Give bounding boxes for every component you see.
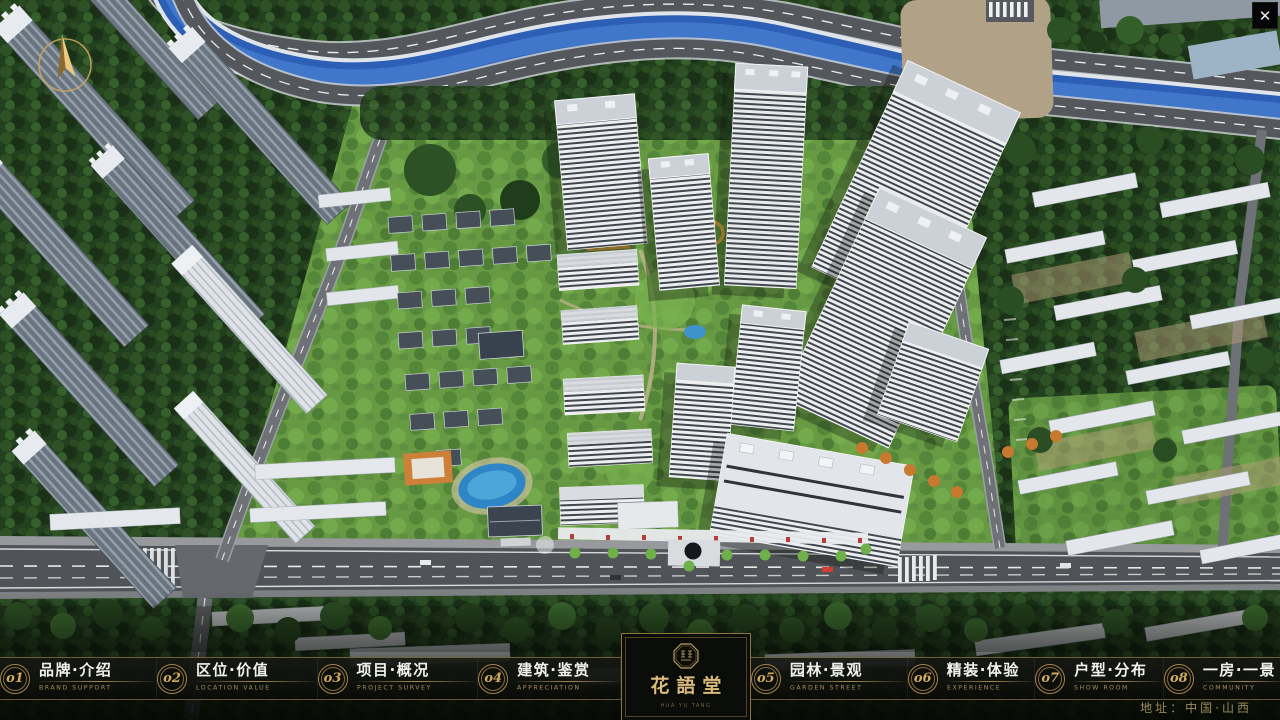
- divider: [790, 681, 907, 682]
- nav-item-number-badge: o1: [0, 664, 30, 694]
- nav-item-interior[interactable]: o6 精装·体验EXPERIENCE: [908, 658, 1036, 699]
- nav-item-number-badge: o6: [908, 664, 938, 694]
- nav-item-number: o6: [914, 671, 932, 686]
- project-address: 地址：中国·山西: [1140, 699, 1252, 716]
- nav-item-number-badge: o3: [318, 664, 348, 694]
- nav-item-sublabel: GARDEN STREET: [790, 685, 862, 692]
- nav-item-brand[interactable]: o1 品牌·介绍BRAND SUPPORT: [0, 658, 157, 699]
- nav-item-landscape[interactable]: o5 园林·景观GARDEN STREET: [751, 658, 908, 699]
- entry-feature: [685, 543, 702, 560]
- presentation-window: ✕ o1 品牌·介绍BRAND SUPPORT o2 区位·价值LOCATION…: [0, 0, 1280, 720]
- nav-item-label: 一房·一景: [1203, 663, 1276, 679]
- nav-item-floorplan[interactable]: o7 户型·分布SHOW ROOM: [1035, 658, 1164, 699]
- nav-item-label: 区位·价值: [196, 663, 269, 679]
- nav-item-sublabel: COMMUNITY: [1203, 685, 1255, 692]
- divider: [357, 681, 478, 682]
- brand-logo-subtext: HUA YU TANG: [660, 703, 711, 709]
- nav-item-number: o3: [324, 671, 342, 686]
- divider: [517, 681, 620, 682]
- nav-item-label: 园林·景观: [790, 663, 863, 679]
- divider: [196, 681, 316, 682]
- nav-item-number: o7: [1041, 671, 1059, 686]
- masterplan-3d-view[interactable]: [0, 0, 1280, 720]
- amenity-building: [403, 450, 453, 485]
- divider: [1074, 681, 1163, 682]
- nav-item-label: 项目·概况: [357, 663, 430, 679]
- divider: [39, 681, 156, 682]
- nav-item-number: o1: [6, 671, 24, 686]
- nav-item-number-badge: o2: [157, 664, 187, 694]
- nav-item-sublabel: SHOW ROOM: [1074, 685, 1129, 692]
- brand-seal-icon: [673, 643, 699, 669]
- nav-item-number-badge: o4: [478, 664, 508, 694]
- nav-item-sublabel: EXPERIENCE: [947, 685, 1001, 692]
- nav-item-sublabel: LOCATION VALUE: [196, 685, 271, 692]
- nav-item-views[interactable]: o8 一房·一景COMMUNITY: [1164, 658, 1280, 699]
- nav-item-label: 品牌·介绍: [39, 663, 112, 679]
- nav-item-label: 精装·体验: [947, 663, 1020, 679]
- nav-item-number: o5: [757, 671, 775, 686]
- nav-group-right: o5 园林·景观GARDEN STREET o6 精装·体验EXPERIENCE…: [751, 658, 1280, 699]
- nav-item-number: o8: [1170, 671, 1188, 686]
- nav-item-number-badge: o5: [751, 664, 781, 694]
- close-icon: ✕: [1259, 7, 1272, 25]
- divider: [947, 681, 1035, 682]
- nav-item-number-badge: o7: [1035, 664, 1065, 694]
- nav-item-number-badge: o8: [1164, 664, 1194, 694]
- nav-item-sublabel: BRAND SUPPORT: [39, 685, 112, 692]
- brand-logo-text: 花語堂: [643, 671, 728, 698]
- nav-group-left: o1 品牌·介绍BRAND SUPPORT o2 区位·价值LOCATION V…: [0, 658, 621, 699]
- nav-item-sublabel: PROJECT SURVEY: [357, 685, 432, 692]
- nav-item-label: 户型·分布: [1074, 663, 1147, 679]
- nav-item-project[interactable]: o3 项目·概况PROJECT SURVEY: [318, 658, 479, 699]
- nav-item-label: 建筑·鉴赏: [517, 663, 590, 679]
- divider: [1203, 681, 1280, 682]
- nav-item-architecture[interactable]: o4 建筑·鉴赏APPRECIATION: [478, 658, 621, 699]
- nav-item-number: o4: [484, 671, 502, 686]
- nav-item-location[interactable]: o2 区位·价值LOCATION VALUE: [157, 658, 317, 699]
- brand-logo-panel[interactable]: 花語堂 HUA YU TANG: [621, 633, 751, 720]
- nav-item-number: o2: [163, 671, 181, 686]
- bottom-navbar: o1 品牌·介绍BRAND SUPPORT o2 区位·价值LOCATION V…: [0, 657, 1280, 700]
- nav-item-sublabel: APPRECIATION: [517, 685, 581, 692]
- close-button[interactable]: ✕: [1252, 2, 1278, 29]
